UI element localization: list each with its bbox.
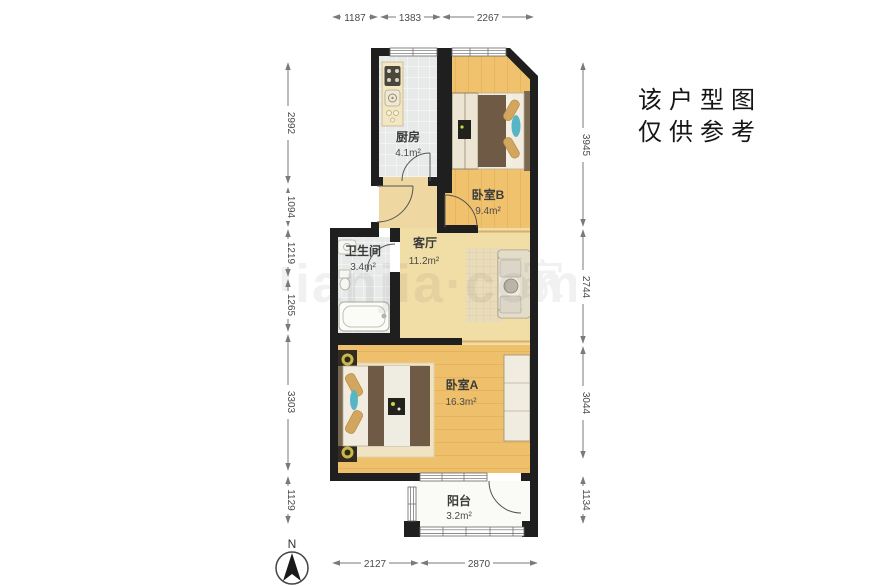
north-label: N [288,537,297,551]
bed-b-throw [512,115,521,137]
dim-right-3: 1134 [580,489,591,511]
bed-b-blanket [478,95,506,167]
room-area-bedroomA: 16.3m² [445,397,477,408]
north-compass: N [276,537,308,584]
reference-note: 该户型图 仅供参考 [638,87,762,146]
balcony-post-right [522,521,538,537]
dim-bottom-0: 2127 [364,559,387,570]
bed-a-throw [350,390,358,410]
wall-right [530,76,538,537]
bedroomB-furniture [452,91,530,171]
stove-icon [385,66,401,86]
dim-left-1: 1094 [285,196,296,219]
wall-bedB-bottom [437,225,478,233]
dim-right-0: 3945 [580,134,591,157]
room-label-living: 客厅 [412,235,437,250]
dim-top-0: 1187 [344,13,366,24]
kitchen-window [390,48,437,56]
bedroomA-balcony-window [420,473,487,481]
room-label-bathroom: 卫生间 [345,243,381,258]
bed-b-headboard [524,91,530,171]
note-line2: 仅供参考 [638,119,762,146]
wall-bedA-bottom-left [338,473,420,481]
bed-a-headboard [338,366,343,446]
kitchen-fixtures [382,62,403,126]
dim-left-3: 1265 [285,294,296,317]
watermark-char: 家 [521,257,565,306]
wall-bath-bottom [330,333,400,345]
balcony-post-left [404,521,420,537]
bedroomB-window [452,48,506,56]
balcony-left-window [408,487,416,521]
note-line1: 该户型图 [638,87,762,114]
room-area-bathroom: 3.4m² [350,262,376,273]
room-area-bedroomB: 9.4m² [475,206,501,217]
floorplan-page: lianjia·com 家 [0,0,871,586]
wall-kitchen-bedB [437,48,452,193]
dim-left-2: 1219 [285,242,296,265]
room-area-kitchen: 4.1m² [395,148,421,159]
room-label-balcony: 阳台 [447,493,471,508]
dim-bottom-1: 2870 [468,559,491,570]
bathtub-faucet [382,314,387,319]
dim-top-1: 1383 [399,13,422,24]
wall-bath-right-stub [390,272,400,287]
room-label-kitchen: 厨房 [396,129,420,144]
dim-right-1: 2744 [580,276,591,299]
dim-top-2: 2267 [477,13,500,24]
room-area-balcony: 3.2m² [446,511,472,522]
balcony-bottom-window [420,527,524,536]
room-label-bedroomA: 卧室A [446,377,479,392]
room-area-living: 11.2m² [409,256,440,267]
wall-kitchen-bottom-right [428,177,452,186]
tray-icon [388,398,405,415]
wall-left-upper [371,48,379,186]
wall-kitchen-bottom-left [371,177,383,186]
room-label-bedroomB: 卧室B [472,187,505,202]
wall-living-bedA [400,338,462,345]
floorplan-canvas: lianjia·com 家 [0,0,871,586]
wall-bedA-bottom-right [521,473,530,481]
tv-icon [458,120,471,139]
wall-hall-bedB [437,193,445,228]
wall-left-lower [330,228,338,481]
dim-left-0: 2992 [285,112,296,135]
dim-right-2: 3044 [580,392,591,415]
dim-left-5: 1129 [285,489,296,511]
balcony-floor [414,481,530,527]
wardrobe-a [504,355,530,441]
wall-bath-right-top [390,228,400,242]
dim-left-4: 3303 [285,391,296,414]
